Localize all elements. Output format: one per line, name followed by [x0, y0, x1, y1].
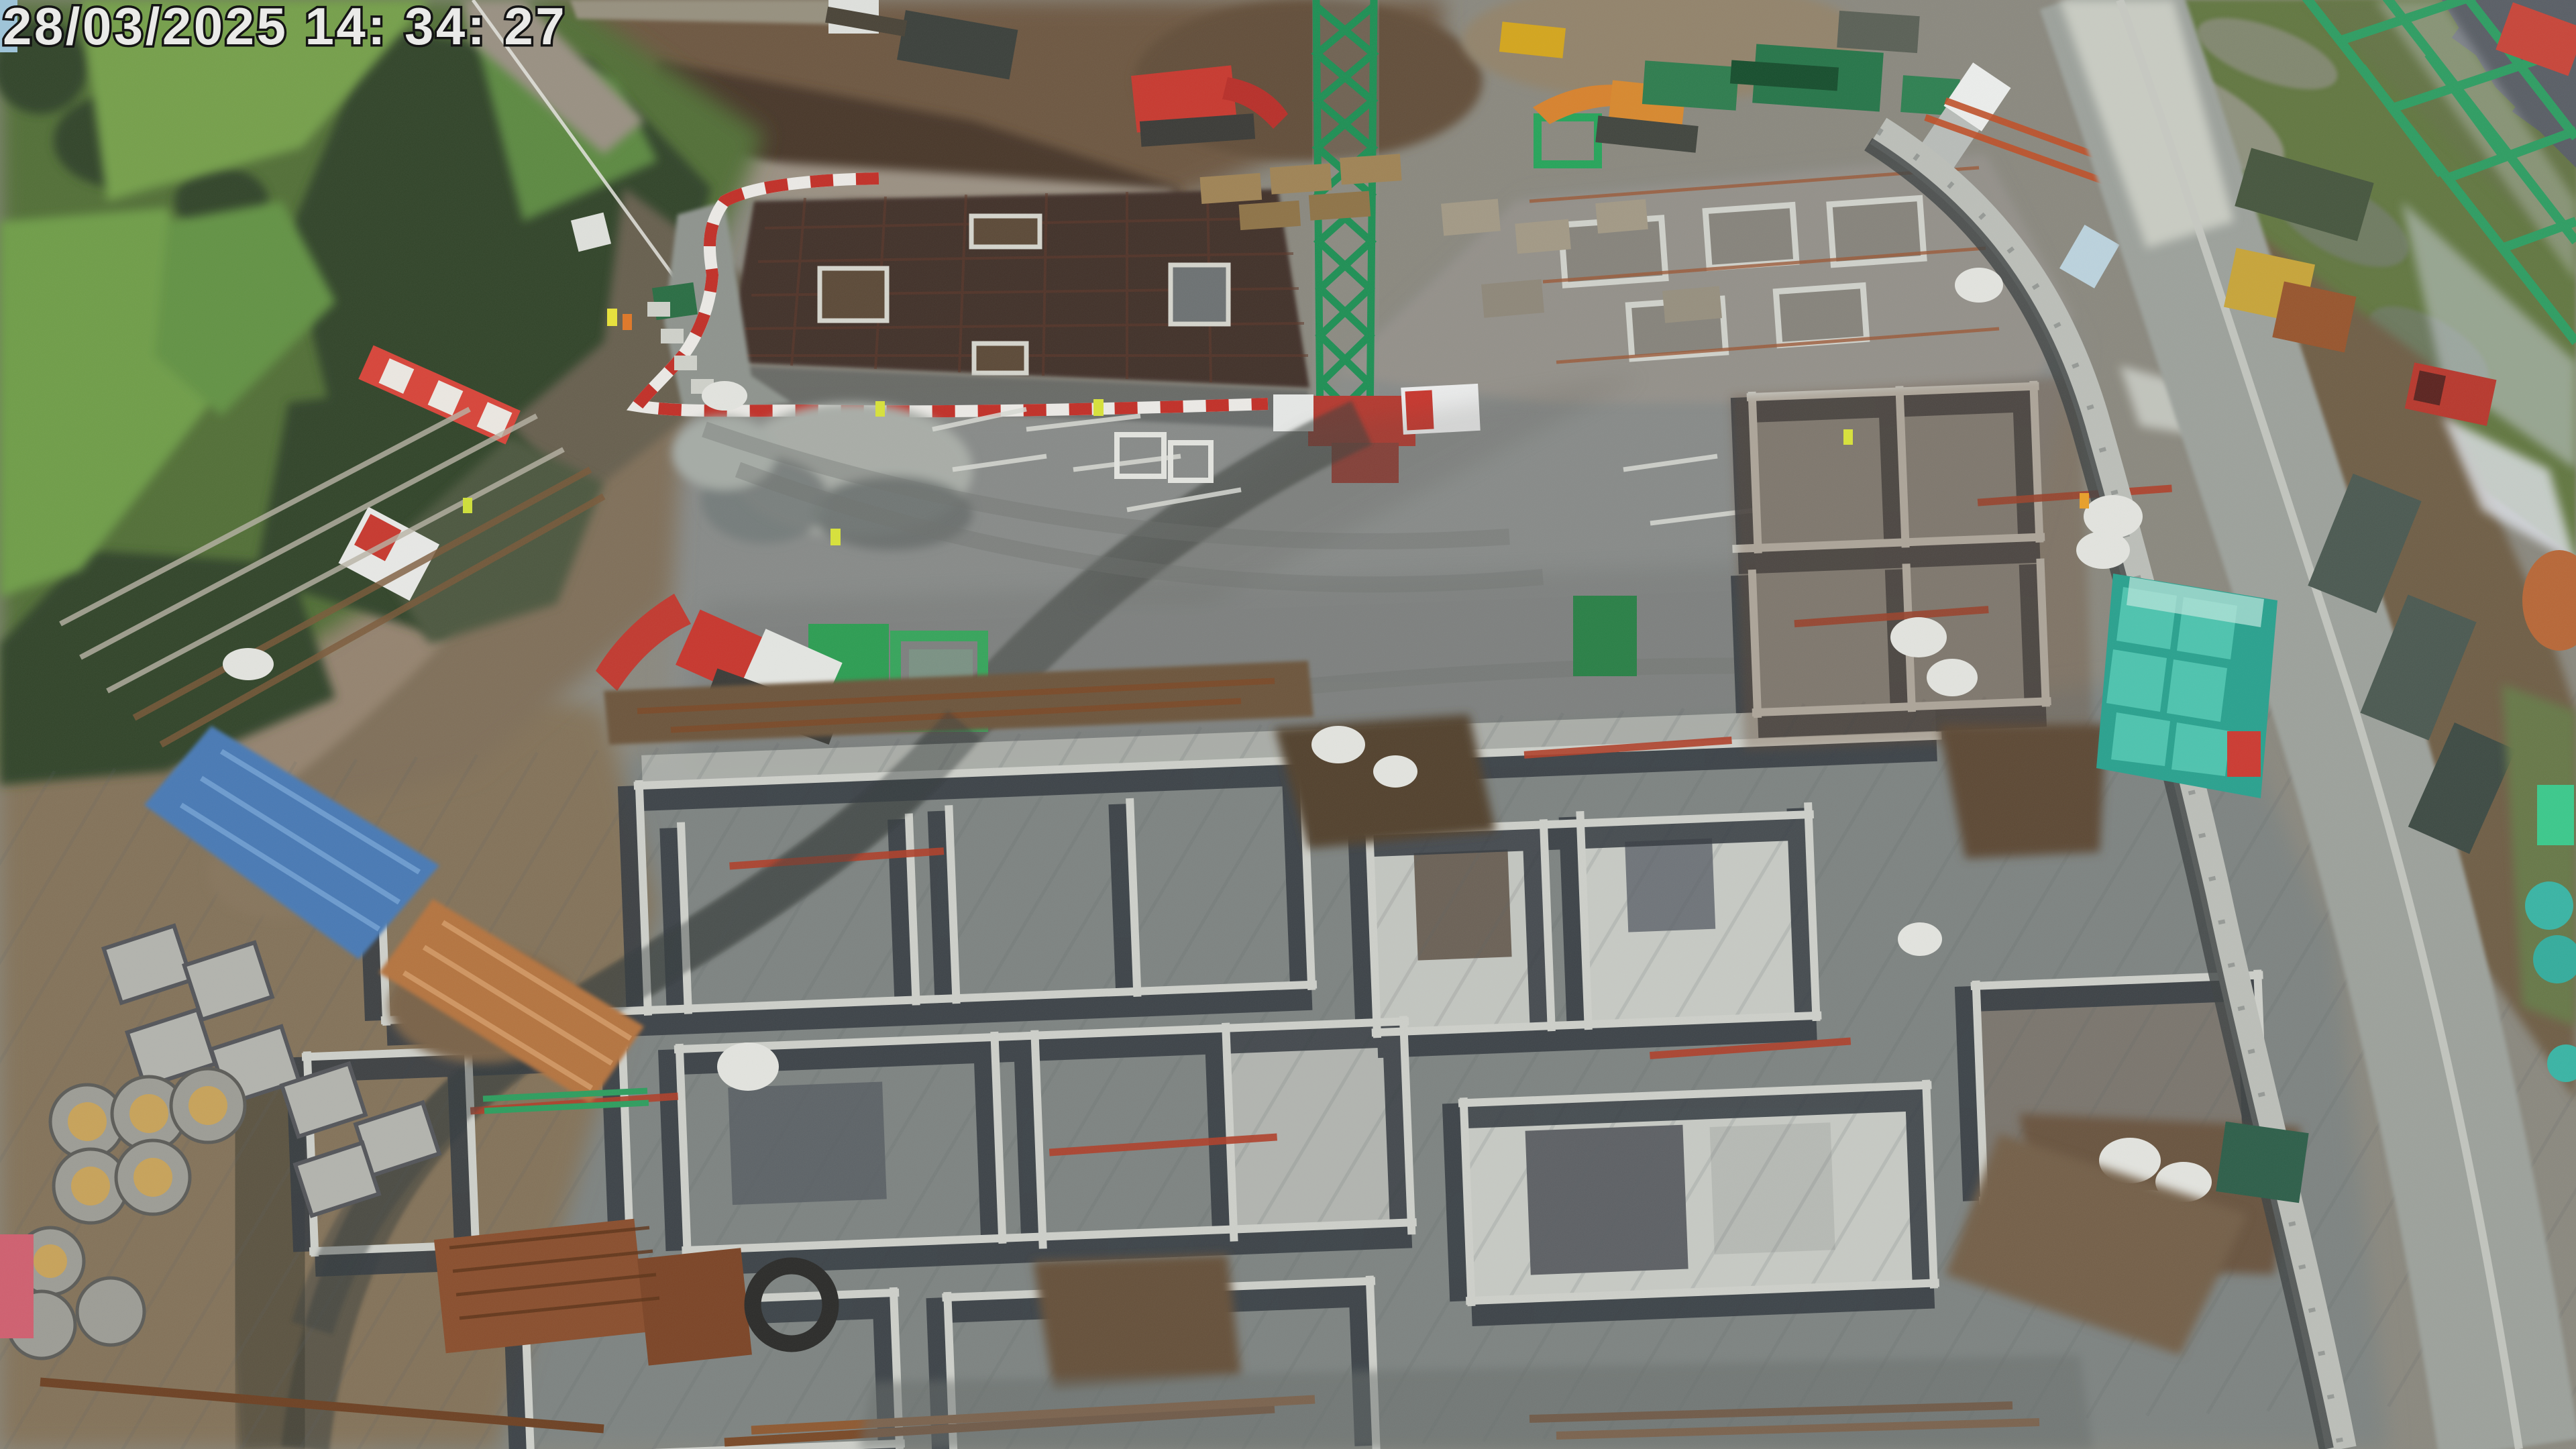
svg-text:28/03/2025 14: 34: 27: 28/03/2025 14: 34: 27 [3, 0, 567, 56]
